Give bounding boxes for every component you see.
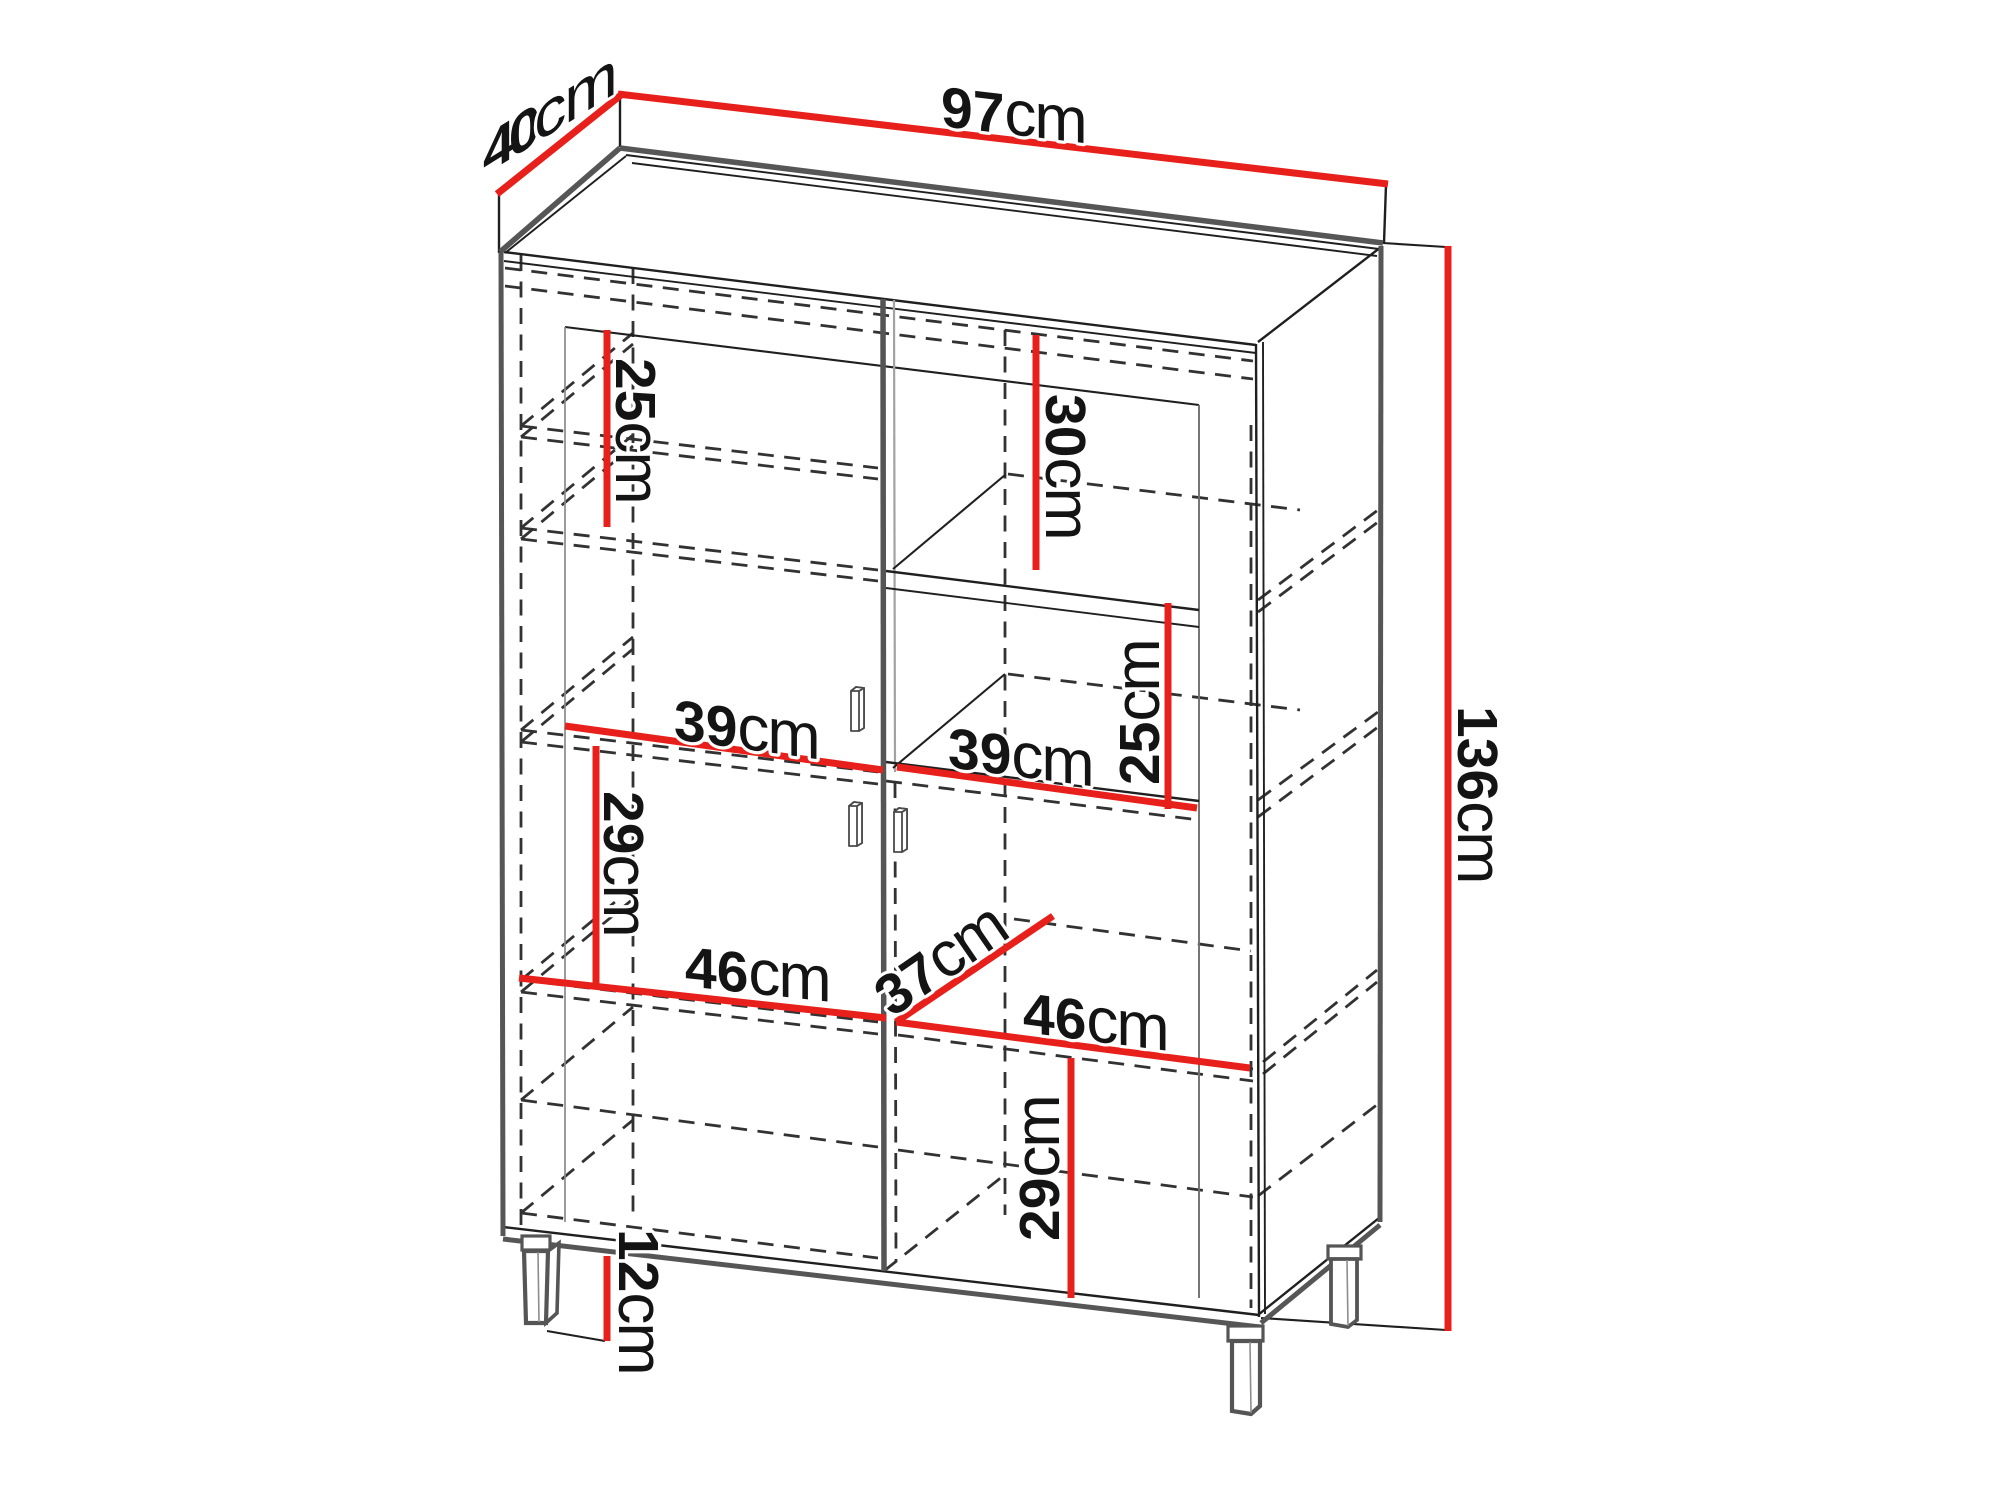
- svg-text:25cm: 25cm: [1101, 640, 1173, 785]
- svg-text:25cm: 25cm: [602, 358, 674, 503]
- svg-text:29cm: 29cm: [590, 791, 662, 936]
- svg-text:29cm: 29cm: [1001, 1096, 1073, 1241]
- svg-text:12cm: 12cm: [605, 1229, 677, 1374]
- svg-text:30cm: 30cm: [1032, 394, 1104, 539]
- svg-text:136cm: 136cm: [1444, 706, 1516, 882]
